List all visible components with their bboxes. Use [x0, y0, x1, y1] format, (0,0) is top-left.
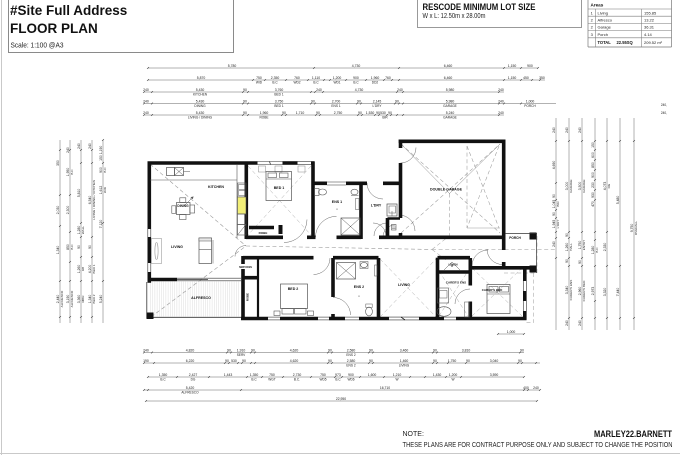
- svg-text:THESE PLANS ARE FOR CONTRACT P: THESE PLANS ARE FOR CONTRACT PURPOSE ONL…: [403, 442, 673, 449]
- svg-text:OVERALL: OVERALL: [634, 221, 638, 236]
- svg-text:Porch: Porch: [598, 32, 608, 37]
- svg-text:90: 90: [552, 212, 556, 216]
- svg-text:1,340: 1,340: [56, 246, 60, 255]
- svg-text:209.52 m²: 209.52 m²: [644, 40, 663, 45]
- svg-text:3,320: 3,320: [603, 288, 607, 297]
- svg-text:150: 150: [591, 142, 595, 148]
- svg-text:B.C: B.C: [272, 80, 278, 84]
- svg-text:WD2: WD2: [293, 80, 300, 84]
- svg-text:B.C: B.C: [160, 377, 166, 381]
- svg-text:5,780: 5,780: [228, 64, 237, 68]
- svg-text:5,240: 5,240: [99, 295, 103, 304]
- svg-text:BIR: BIR: [556, 201, 560, 207]
- svg-text:x: x: [358, 294, 360, 298]
- svg-text:1,150: 1,150: [508, 64, 517, 68]
- svg-text:B.C: B.C: [70, 169, 74, 175]
- svg-text:6,460: 6,460: [444, 64, 453, 68]
- svg-text:90: 90: [357, 100, 361, 104]
- svg-text:BIR: BIR: [382, 115, 388, 119]
- svg-text:90: 90: [243, 100, 247, 104]
- svg-text:DINING: DINING: [194, 104, 206, 108]
- svg-text:WALL: WALL: [81, 226, 85, 235]
- svg-text:LIVING / DINING: LIVING / DINING: [188, 115, 213, 119]
- svg-text:240: 240: [66, 147, 70, 153]
- svg-text:240: 240: [578, 320, 582, 326]
- svg-text:1,750: 1,750: [448, 359, 457, 363]
- svg-text:600: 600: [591, 152, 595, 158]
- svg-text:4,620: 4,620: [290, 359, 299, 363]
- svg-text:2,300: 2,300: [66, 206, 70, 215]
- svg-text:PORCH: PORCH: [524, 104, 536, 108]
- svg-text:ALFRESCO: ALFRESCO: [191, 296, 211, 300]
- svg-text:4,690: 4,690: [552, 161, 556, 170]
- svg-text:90: 90: [243, 88, 247, 92]
- svg-text:KITCHEN: KITCHEN: [193, 92, 208, 96]
- svg-text:1,600: 1,600: [368, 373, 377, 377]
- svg-text:90: 90: [565, 233, 569, 237]
- svg-text:90: 90: [282, 111, 286, 115]
- svg-text:2: 2: [591, 18, 594, 23]
- svg-text:ALFRESCO: ALFRESCO: [181, 390, 199, 394]
- svg-text:190: 190: [143, 359, 149, 363]
- svg-text:PORCH: PORCH: [509, 236, 521, 240]
- svg-text:LINEN: LINEN: [449, 263, 458, 267]
- svg-text:90: 90: [520, 349, 524, 353]
- svg-text:240: 240: [578, 127, 582, 133]
- svg-text:5,480: 5,480: [616, 196, 620, 205]
- svg-text:ROBE: ROBE: [246, 293, 250, 301]
- svg-text:LIVING: LIVING: [399, 363, 410, 367]
- svg-text:760: 760: [385, 76, 391, 80]
- svg-text:GARAGE: GARAGE: [443, 115, 457, 119]
- svg-text:900: 900: [527, 64, 533, 68]
- svg-text:90: 90: [316, 111, 320, 115]
- svg-text:ENTRY: ENTRY: [582, 240, 586, 250]
- svg-text:5,870: 5,870: [197, 76, 206, 80]
- svg-text:LIVING: LIVING: [171, 245, 183, 249]
- svg-text:90: 90: [358, 111, 362, 115]
- svg-text:2,030: 2,030: [56, 206, 60, 215]
- svg-text:3,590: 3,590: [490, 373, 499, 377]
- svg-text:240,: 240,: [661, 111, 667, 115]
- svg-text:CARER'S ENS: CARER'S ENS: [569, 280, 573, 301]
- svg-text:GARAGE: GARAGE: [582, 179, 586, 192]
- svg-text:90: 90: [369, 359, 373, 363]
- svg-text:L'DRY: L'DRY: [556, 220, 560, 229]
- svg-text:BED 2: BED 2: [288, 287, 299, 291]
- svg-text:90: 90: [77, 245, 81, 249]
- svg-text:4,620: 4,620: [290, 349, 299, 353]
- svg-text:240: 240: [498, 111, 504, 115]
- svg-text:B.C: B.C: [595, 247, 599, 253]
- svg-text:240: 240: [533, 386, 539, 390]
- svg-text:HALL: HALL: [569, 243, 573, 251]
- svg-text:240: 240: [88, 143, 92, 149]
- svg-text:240: 240: [565, 320, 569, 326]
- svg-text:530: 530: [231, 359, 237, 363]
- svg-text:MARLEY22.BARNETT: MARLEY22.BARNETT: [594, 429, 672, 439]
- svg-text:6,220: 6,220: [186, 359, 195, 363]
- svg-text:240,: 240,: [661, 103, 667, 107]
- svg-text:ENS 2: ENS 2: [346, 353, 355, 357]
- svg-text:W: W: [395, 377, 398, 381]
- svg-text:240: 240: [77, 143, 81, 149]
- svg-text:155.85: 155.85: [644, 10, 657, 15]
- svg-text:WID: WID: [256, 80, 263, 84]
- svg-text:1,710: 1,710: [296, 111, 305, 115]
- svg-text:Living: Living: [598, 10, 608, 15]
- svg-text:Areas: Areas: [591, 2, 604, 7]
- svg-text:Garage: Garage: [598, 25, 612, 30]
- svg-text:CARER'S ENS: CARER'S ENS: [446, 281, 466, 285]
- svg-text:90: 90: [565, 259, 569, 263]
- svg-text:1,430: 1,430: [433, 373, 442, 377]
- svg-text:350: 350: [539, 76, 545, 80]
- svg-text:Alfresco: Alfresco: [598, 18, 613, 23]
- svg-text:B.C: B.C: [313, 80, 319, 84]
- svg-text:90: 90: [395, 100, 399, 104]
- svg-text:B.C.: B.C.: [294, 377, 300, 381]
- svg-text:LIVING: LIVING: [398, 283, 410, 287]
- svg-text:240: 240: [143, 349, 149, 353]
- svg-text:DG: DG: [191, 377, 196, 381]
- svg-text:930: 930: [591, 192, 595, 198]
- svg-text:90: 90: [466, 359, 470, 363]
- svg-text:240: 240: [552, 241, 556, 247]
- svg-text:x: x: [336, 207, 338, 211]
- svg-text:SERVICES: SERVICES: [239, 265, 252, 269]
- svg-text:150: 150: [99, 155, 103, 161]
- svg-text:240: 240: [143, 88, 149, 92]
- svg-text:L'DRY: L'DRY: [372, 104, 382, 108]
- svg-text:90: 90: [518, 359, 522, 363]
- svg-text:90: 90: [251, 349, 255, 353]
- svg-text:1: 1: [591, 10, 594, 15]
- svg-text:WD6: WD6: [347, 377, 354, 381]
- svg-text:36.31: 36.31: [644, 25, 655, 30]
- svg-text:90: 90: [225, 359, 229, 363]
- svg-text:1,000: 1,000: [507, 330, 516, 334]
- svg-text:GARAGE: GARAGE: [569, 179, 573, 192]
- svg-text:ALFRESCO: ALFRESCO: [60, 290, 64, 307]
- svg-text:ENS 2: ENS 2: [346, 363, 355, 367]
- svg-text:470: 470: [591, 201, 595, 207]
- svg-text:7,120: 7,120: [99, 220, 103, 229]
- svg-text:RB: RB: [81, 267, 85, 271]
- svg-text:2: 2: [591, 25, 594, 30]
- svg-text:240: 240: [143, 111, 149, 115]
- svg-text:W: W: [451, 377, 454, 381]
- svg-text:2,973: 2,973: [591, 287, 595, 296]
- svg-text:ENS 2: ENS 2: [354, 285, 364, 289]
- svg-text:240: 240: [498, 100, 504, 104]
- svg-text:BED 1: BED 1: [274, 92, 283, 96]
- svg-text:WD5: WD5: [319, 377, 326, 381]
- svg-text:3: 3: [591, 32, 594, 37]
- svg-text:CARER'S BED: CARER'S BED: [482, 288, 503, 292]
- svg-text:1,530: 1,530: [366, 111, 375, 115]
- svg-text:BED 2: BED 2: [92, 294, 96, 303]
- svg-text:1,443: 1,443: [224, 373, 233, 377]
- svg-text:ALFRESCO: ALFRESCO: [70, 290, 74, 307]
- svg-text:90: 90: [243, 111, 247, 115]
- svg-text:350: 350: [56, 160, 60, 166]
- svg-text:ENS 1: ENS 1: [332, 200, 342, 204]
- svg-text:BED 1: BED 1: [274, 104, 283, 108]
- svg-text:90: 90: [242, 359, 246, 363]
- svg-text:DD2: DD2: [372, 80, 379, 84]
- svg-text:DOUBLE GARAGE: DOUBLE GARAGE: [430, 188, 463, 192]
- svg-text:3,460: 3,460: [400, 349, 409, 353]
- svg-text:850: 850: [591, 162, 595, 168]
- svg-text:240: 240: [498, 88, 504, 92]
- svg-text:CARER'S BED: CARER'S BED: [582, 280, 586, 301]
- svg-text:MBR: MBR: [81, 295, 85, 303]
- svg-text:DG: DG: [607, 183, 611, 188]
- svg-text:5,980: 5,980: [446, 88, 455, 92]
- svg-text:ROBE: ROBE: [259, 231, 268, 235]
- svg-text:90: 90: [433, 349, 437, 353]
- svg-text:L'DRY: L'DRY: [371, 204, 382, 208]
- svg-text:4,820: 4,820: [186, 349, 195, 353]
- svg-text:B.C: B.C: [103, 167, 107, 173]
- svg-text:4.14: 4.14: [644, 32, 653, 37]
- svg-text:4,730: 4,730: [352, 64, 361, 68]
- svg-text:5,810: 5,810: [77, 189, 81, 198]
- svg-text:BED 1: BED 1: [274, 186, 285, 190]
- svg-text:WIR: WIR: [103, 186, 107, 193]
- svg-text:240: 240: [397, 88, 403, 92]
- svg-text:90: 90: [369, 349, 373, 353]
- svg-text:240: 240: [316, 88, 322, 92]
- svg-text:90: 90: [88, 245, 92, 249]
- svg-text:6,460: 6,460: [444, 76, 453, 80]
- svg-text:2,750: 2,750: [334, 111, 343, 115]
- svg-text:230: 230: [591, 182, 595, 188]
- svg-text:WD1: WD1: [333, 80, 340, 84]
- svg-text:TOTAL: TOTAL: [598, 40, 612, 45]
- svg-text:SERV: SERV: [237, 353, 246, 357]
- svg-text:DINING: DINING: [177, 204, 189, 208]
- svg-text:B.C: B.C: [251, 377, 257, 381]
- svg-text:1,150: 1,150: [508, 76, 517, 80]
- svg-text:13.22: 13.22: [644, 18, 655, 23]
- svg-text:90: 90: [227, 349, 231, 353]
- svg-text:4,730: 4,730: [355, 88, 364, 92]
- svg-text:B.C: B.C: [335, 377, 341, 381]
- svg-text:90: 90: [578, 260, 582, 264]
- svg-text:BED 1: BED 1: [92, 264, 96, 273]
- svg-text:450: 450: [523, 76, 529, 80]
- svg-text:240: 240: [552, 127, 556, 133]
- svg-text:GARAGE: GARAGE: [443, 104, 457, 108]
- svg-text:90: 90: [552, 194, 556, 198]
- svg-text:LIVING / DINING / KITCHEN: LIVING / DINING / KITCHEN: [92, 180, 96, 220]
- svg-text:90: 90: [328, 359, 332, 363]
- svg-text:90: 90: [388, 111, 392, 115]
- svg-text:90: 90: [311, 100, 315, 104]
- svg-text:240: 240: [143, 100, 149, 104]
- svg-text:7,440: 7,440: [616, 288, 620, 297]
- svg-text:ENS 1: ENS 1: [331, 104, 340, 108]
- svg-text:900: 900: [591, 172, 595, 178]
- svg-text:16,710: 16,710: [380, 386, 390, 390]
- svg-text:W x L: 12.50m x 28.00m: W x L: 12.50m x 28.00m: [423, 11, 486, 20]
- svg-text:1,190: 1,190: [99, 146, 103, 155]
- svg-text:3,810: 3,810: [462, 349, 471, 353]
- svg-text:B.C: B.C: [353, 80, 359, 84]
- svg-text:22.55SQ: 22.55SQ: [617, 40, 634, 45]
- svg-text:90: 90: [433, 359, 437, 363]
- svg-text:B.C: B.C: [70, 244, 74, 250]
- svg-text:2,330: 2,330: [603, 243, 607, 252]
- svg-text:90: 90: [328, 349, 332, 353]
- svg-text:NOTE:: NOTE:: [403, 431, 424, 438]
- svg-text:3,040: 3,040: [490, 359, 499, 363]
- svg-text:ROBE: ROBE: [259, 115, 268, 119]
- svg-text:400: 400: [523, 386, 529, 390]
- svg-text:WGT: WGT: [268, 377, 275, 381]
- svg-text:KITCHEN: KITCHEN: [208, 185, 224, 189]
- svg-text:Scale: 1:100 @A3: Scale: 1:100 @A3: [11, 41, 64, 50]
- svg-text:240: 240: [565, 127, 569, 133]
- svg-text:22,950: 22,950: [336, 397, 346, 401]
